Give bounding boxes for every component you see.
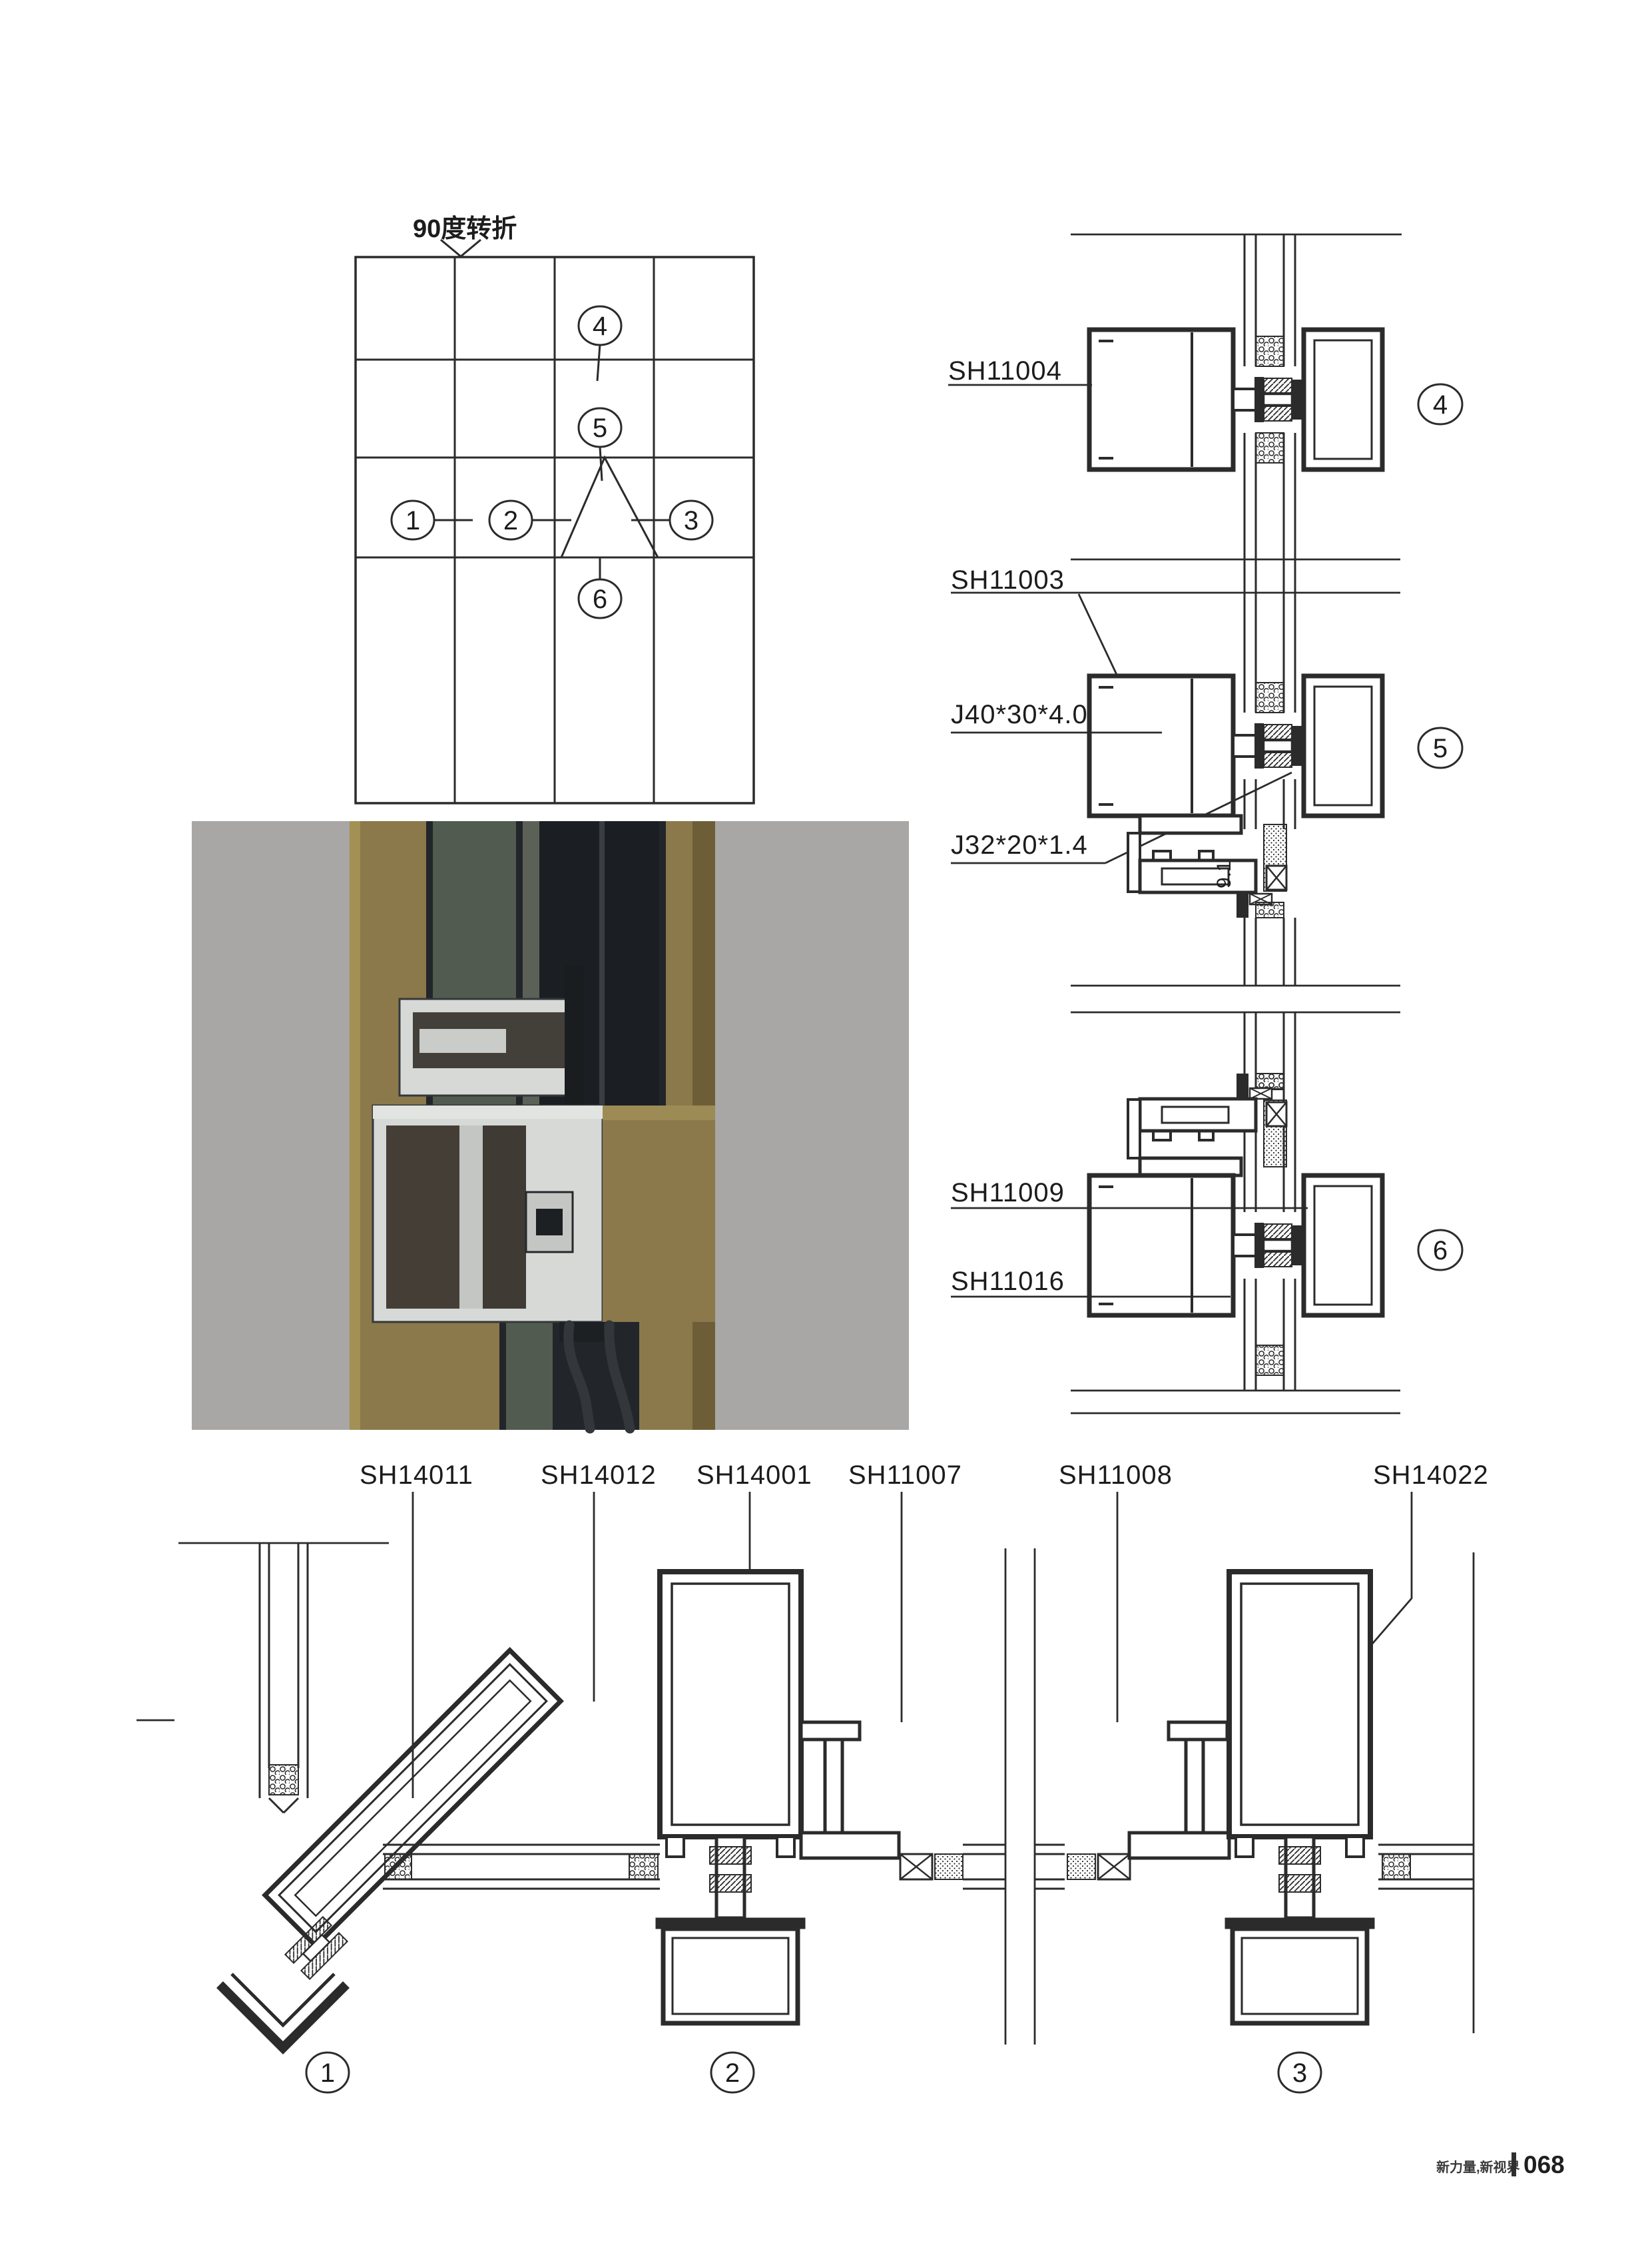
- detail-callout-3: 3: [1278, 2053, 1321, 2092]
- plan-callout-2: 2: [489, 501, 532, 539]
- plan-callout-4: 4: [579, 306, 621, 345]
- svg-text:6: 6: [1433, 1236, 1448, 1265]
- clip-sh11008: [1129, 1722, 1229, 1858]
- horizontal-sections: SH14011 SH14012 SH14001 SH11007 SH11008 …: [137, 1460, 1489, 2092]
- detail5-bracket: [1128, 816, 1286, 918]
- vertical-detail-5: SH11003 J40*30*4.0 J32*20*1.4: [951, 565, 1462, 918]
- svg-text:4: 4: [1433, 390, 1448, 420]
- plan-callout-6: 6: [579, 579, 621, 618]
- detail-callout-2: 2: [711, 2053, 754, 2092]
- plan-callout-3: 3: [670, 501, 712, 539]
- vertical-sections: SH11004 4 SH11003 J40*30*4.0 J32*20*1.4: [948, 234, 1462, 1413]
- label-sh14011: SH14011: [360, 1460, 473, 1490]
- detail5-profile-label: SH11003: [951, 565, 1065, 595]
- svg-text:6: 6: [593, 585, 607, 614]
- photo-glazing-top: [426, 821, 666, 1145]
- footer-divider: [1512, 2152, 1516, 2176]
- horizontal-detail-1: 1: [220, 1543, 561, 2092]
- svg-text:1: 1: [406, 506, 420, 535]
- svg-text:1: 1: [320, 2059, 335, 2088]
- detail-callout-5: 5: [1418, 728, 1462, 768]
- svg-text:2: 2: [503, 506, 518, 535]
- detail4-profile-label: SH11004: [948, 356, 1062, 386]
- vertical-detail-6: SH11009 SH11016 6: [951, 1074, 1462, 1315]
- glass-band-left: [383, 1845, 660, 1889]
- svg-text:3: 3: [684, 506, 698, 535]
- svg-text:5: 5: [1433, 734, 1448, 763]
- clip-sh11007: [801, 1722, 899, 1858]
- label-sh11007: SH11007: [848, 1460, 962, 1490]
- svg-text:2: 2: [725, 2059, 740, 2088]
- plan-callout-1: 1: [392, 501, 434, 539]
- detail6-bottom-label: SH11016: [951, 1267, 1065, 1296]
- detail5-dimension: 9.1: [1213, 860, 1235, 888]
- technical-drawing-canvas: 90度转折 1 2 3 4: [0, 0, 1652, 2241]
- svg-text:3: 3: [1292, 2059, 1307, 2088]
- page-footer: 新力量,新视界 068: [1436, 2151, 1565, 2178]
- product-photo: [192, 821, 909, 1430]
- detail5-angle-label: J32*20*1.4: [951, 830, 1088, 860]
- horizontal-detail-2: 2: [656, 1572, 1005, 2092]
- detail-callout-4: 4: [1418, 384, 1462, 424]
- corner-bracket: [220, 1985, 346, 2048]
- label-sh14001: SH14001: [696, 1460, 812, 1490]
- corner-note-label: 90度转折: [413, 215, 517, 243]
- elevation-grid-diagram: 90度转折 1 2 3 4: [356, 215, 754, 803]
- label-sh14012: SH14012: [541, 1460, 657, 1490]
- label-sh14022: SH14022: [1373, 1460, 1489, 1490]
- grid-opening-triangle: [561, 458, 658, 557]
- catalog-page: 90度转折 1 2 3 4: [0, 0, 1652, 2241]
- footer-page-number: 068: [1523, 2151, 1565, 2178]
- detail6-bracket: [1128, 1074, 1286, 1175]
- svg-text:4: 4: [593, 312, 607, 341]
- detail-callout-6: 6: [1418, 1230, 1462, 1270]
- footer-slogan: 新力量,新视界: [1436, 2159, 1520, 2175]
- svg-text:5: 5: [593, 414, 607, 443]
- horizontal-detail-3: 3: [1035, 1572, 1474, 2092]
- detail5-steel-label: J40*30*4.0: [951, 700, 1088, 729]
- plan-callout-5: 5: [579, 408, 621, 447]
- vertical-detail-4: SH11004 4: [948, 330, 1462, 470]
- detail6-top-label: SH11009: [951, 1178, 1065, 1207]
- detail-callout-1: 1: [306, 2053, 349, 2092]
- label-sh11008: SH11008: [1059, 1460, 1173, 1490]
